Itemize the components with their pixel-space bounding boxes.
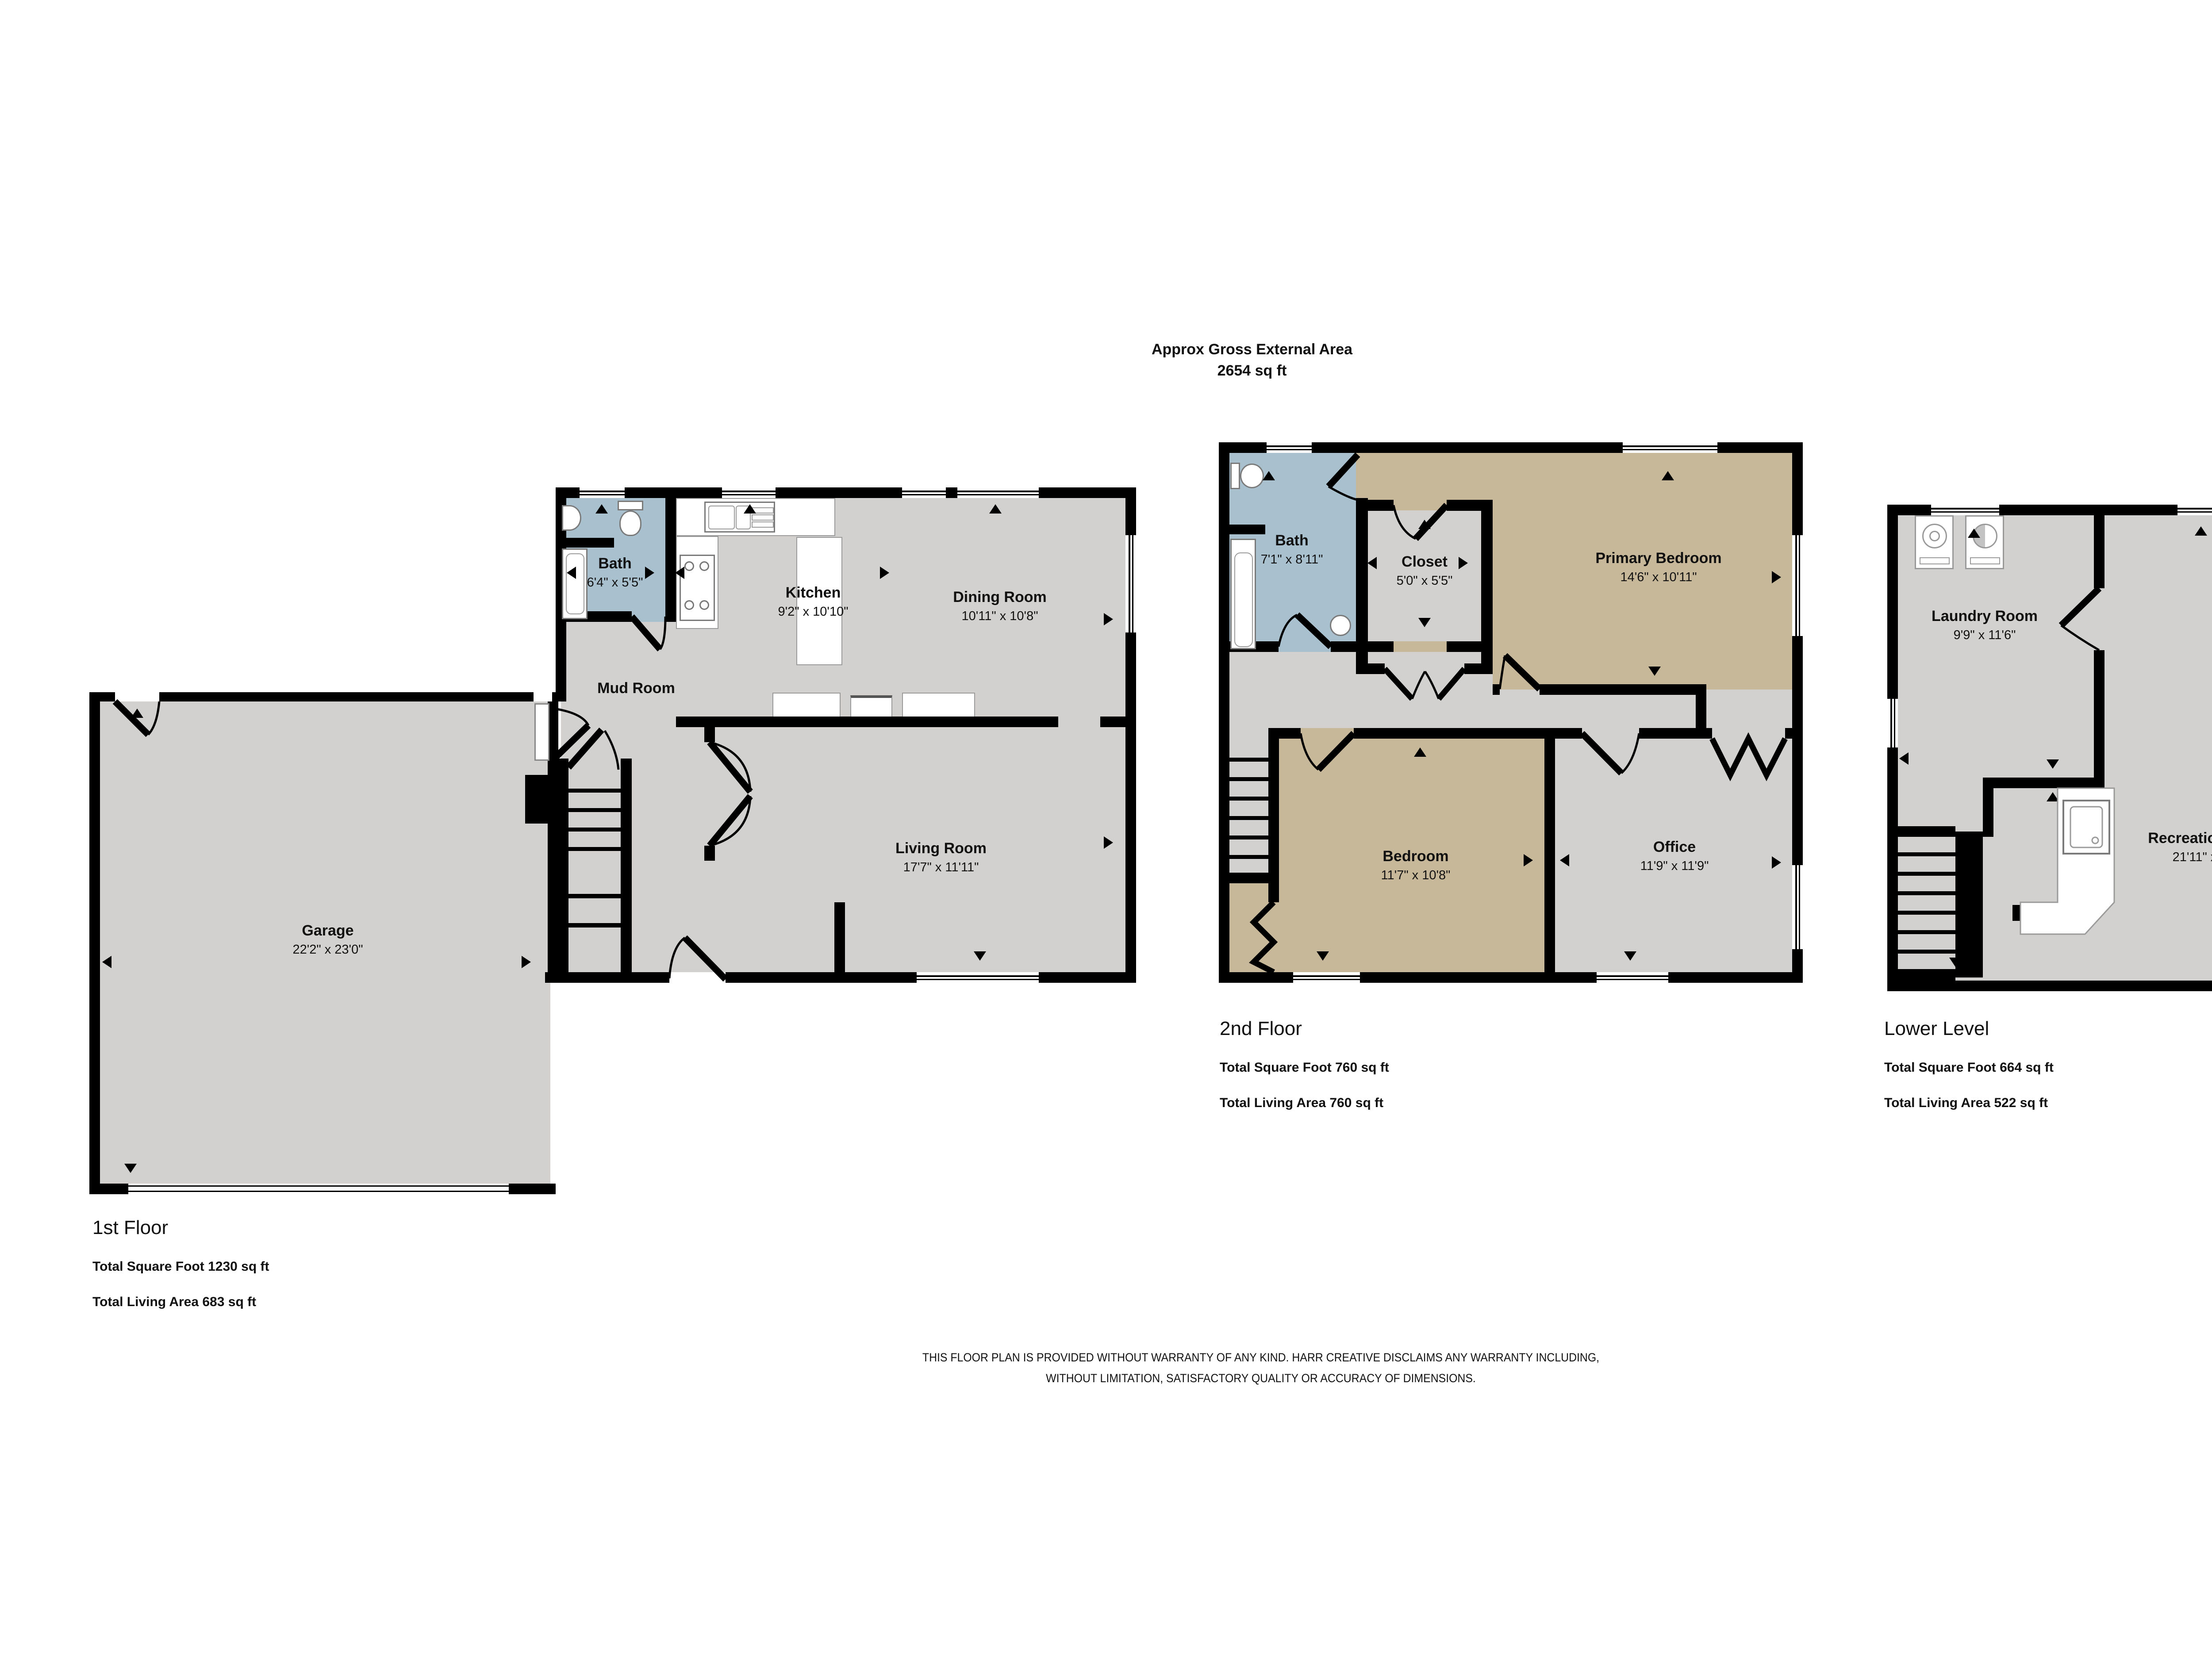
wall — [1100, 717, 1136, 727]
room-dims: 16'8" x 11'2" — [2182, 626, 2212, 644]
wall — [1268, 883, 1279, 902]
room-name: Bedroom — [1323, 847, 1509, 866]
gross-area-header: Approx Gross External Area 2654 sq ft — [942, 339, 1562, 381]
direction-arrow-icon — [1414, 747, 1426, 757]
window — [1792, 865, 1803, 949]
washer-icon — [1915, 515, 1954, 569]
direction-arrow-icon — [974, 951, 986, 961]
room-name: Bath — [522, 554, 708, 573]
direction-arrow-icon — [1662, 471, 1674, 480]
room-name: Living Room — [848, 839, 1034, 858]
wall — [1983, 778, 2104, 788]
room-name: Office — [1582, 837, 1767, 857]
direction-arrow-icon — [1263, 471, 1275, 480]
floorplan-page: { "header": { "line1": "Approx Gross Ext… — [0, 0, 2212, 1671]
room-name: Recreation Room — [2117, 828, 2212, 848]
direction-arrow-icon — [1104, 613, 1113, 625]
wall — [1224, 873, 1279, 883]
direction-arrow-icon — [1104, 836, 1113, 849]
wall — [1268, 739, 1279, 883]
window — [1597, 972, 1668, 983]
room-name: Closet — [1332, 552, 1517, 571]
floor-total-living-area: Total Living Area 760 sq ft — [1220, 1095, 1389, 1111]
direction-arrow-icon — [102, 956, 111, 968]
floor-total-square-foot: Total Square Foot 1230 sq ft — [92, 1259, 269, 1275]
direction-arrow-icon — [595, 504, 608, 514]
wall — [1955, 832, 1983, 977]
door-opening — [669, 972, 726, 983]
direction-arrow-icon — [2047, 759, 2059, 769]
wall — [1356, 500, 1394, 511]
floor-total-square-foot: Total Square Foot 664 sq ft — [1884, 1060, 2054, 1076]
room-dims: 5'0" x 5'5" — [1332, 571, 1517, 590]
sink-icon — [1330, 615, 1351, 636]
wall — [1268, 728, 1301, 739]
room-name: Laundry Room — [1892, 606, 2078, 626]
window — [1623, 442, 1717, 453]
wall — [1898, 972, 1955, 981]
window — [1293, 972, 1360, 983]
direction-arrow-icon — [522, 956, 531, 968]
dryer-icon — [1965, 515, 2004, 569]
window — [917, 972, 1039, 983]
window — [957, 487, 1039, 498]
window — [2177, 505, 2212, 515]
direction-arrow-icon — [1899, 752, 1909, 765]
kitchen-sink-icon — [704, 502, 775, 533]
wall — [1493, 684, 1500, 695]
direction-arrow-icon — [2195, 526, 2207, 536]
direction-arrow-icon — [1524, 854, 1533, 866]
wall — [1983, 788, 1993, 837]
stairs-lower-level — [1898, 837, 1955, 974]
disclaimer-line2: WITHOUT LIMITATION, SATISFACTORY QUALITY… — [793, 1368, 1729, 1389]
room-label-dining-room: Dining Room 10'11" x 10'8" — [907, 587, 1093, 625]
wall — [1219, 442, 1229, 983]
burner — [684, 600, 694, 610]
wall — [704, 846, 715, 861]
washer-agitator — [1929, 531, 1940, 541]
wall — [1331, 641, 1356, 652]
direction-arrow-icon — [744, 504, 756, 514]
wall — [1464, 663, 1493, 674]
wall — [2094, 515, 2104, 588]
wall — [1356, 663, 1385, 674]
window — [1792, 535, 1803, 636]
window — [1887, 699, 1898, 747]
room-dims: 11'9" x 11'9" — [1582, 857, 1767, 875]
stairs-first-floor-upper — [568, 773, 621, 851]
room-dims: 9'2" x 10'10" — [720, 602, 906, 621]
room-dims: 17'7" x 11'11" — [848, 858, 1034, 877]
direction-arrow-icon — [1648, 667, 1661, 676]
room-label-closet: Closet 5'0" x 5'5" — [1332, 552, 1517, 590]
room-dims: 9'9" x 11'6" — [1892, 626, 2078, 644]
wall — [2094, 650, 2104, 788]
sink-bowl — [708, 506, 735, 529]
caption-1st-floor: 1st Floor Total Square Foot 1230 sq ft T… — [92, 1216, 269, 1330]
washer-base — [1920, 557, 1950, 564]
floor-total-living-area: Total Living Area 522 sq ft — [1884, 1095, 2054, 1111]
direction-arrow-icon — [1772, 856, 1781, 869]
floor-total-square-foot: Total Square Foot 760 sq ft — [1220, 1060, 1389, 1076]
wall — [1887, 981, 2212, 991]
direction-arrow-icon — [1418, 618, 1431, 627]
room-name: Dining Room — [907, 587, 1093, 607]
direction-arrow-icon — [2047, 792, 2059, 801]
wall — [1447, 641, 1493, 652]
room-dims: 11'7" x 10'8" — [1323, 866, 1509, 885]
room-label-recreation-room-lower: Recreation Room 21'11" x 11'2" — [2117, 828, 2212, 866]
wall — [1550, 728, 1582, 739]
direction-arrow-icon — [131, 709, 143, 718]
wall — [1639, 728, 1712, 739]
wall — [704, 727, 715, 742]
room-name: Recreation Room — [2182, 606, 2212, 626]
wall — [676, 717, 1058, 727]
room-label-recreation-room-upper: Recreation Room 16'8" x 11'2" — [2182, 606, 2212, 644]
direction-arrow-icon — [1418, 520, 1431, 529]
room-label-garage: Garage 22'2" x 23'0" — [235, 921, 421, 959]
wall — [545, 972, 1136, 983]
room-label-living-room: Living Room 17'7" x 11'11" — [848, 839, 1034, 877]
wall — [89, 692, 100, 1194]
burner — [699, 600, 709, 610]
window — [722, 487, 776, 498]
garage-door — [128, 1184, 509, 1194]
floor-title: 2nd Floor — [1220, 1017, 1389, 1040]
door-opening — [115, 692, 159, 701]
room-dims: 10'11" x 10'8" — [907, 607, 1093, 625]
drainboard — [752, 514, 774, 521]
room-dims: 14'6" x 10'11" — [1566, 568, 1751, 586]
support-post — [2012, 905, 2028, 921]
room-dims: 6'4" x 5'5" — [522, 573, 708, 592]
window — [1125, 535, 1136, 632]
gross-area-line1: Approx Gross External Area — [942, 339, 1562, 360]
room-name: Mud Room — [543, 678, 729, 698]
bedroom-corner — [1224, 883, 1274, 972]
room-label-bath1: Bath 6'4" x 5'5" — [522, 554, 708, 592]
caption-2nd-floor: 2nd Floor Total Square Foot 760 sq ft To… — [1220, 1017, 1389, 1131]
direction-arrow-icon — [1560, 854, 1569, 866]
drainboard — [752, 521, 774, 528]
direction-arrow-icon — [124, 1164, 137, 1173]
floor-title: Lower Level — [1884, 1017, 2054, 1040]
room-label-primary-bedroom: Primary Bedroom 14'6" x 10'11" — [1566, 548, 1751, 586]
direction-arrow-icon — [989, 504, 1002, 514]
wall — [525, 775, 548, 824]
window — [580, 487, 625, 498]
wall — [1540, 684, 1696, 695]
disclaimer-line1: THIS FLOOR PLAN IS PROVIDED WITHOUT WARR… — [793, 1347, 1729, 1368]
gross-area-line2: 2654 sq ft — [942, 360, 1562, 381]
disclaimer: THIS FLOOR PLAN IS PROVIDED WITHOUT WARR… — [793, 1347, 1729, 1389]
wall — [621, 759, 632, 972]
direction-arrow-icon — [1772, 571, 1781, 583]
door-panel — [534, 703, 549, 761]
wall — [1898, 826, 1955, 837]
direction-arrow-icon — [1949, 958, 1962, 967]
room-label-office: Office 11'9" x 11'9" — [1582, 837, 1767, 875]
floor-title: 1st Floor — [92, 1216, 269, 1239]
wall — [1544, 739, 1555, 972]
wall — [558, 759, 568, 972]
toilet-tank — [618, 501, 643, 510]
direction-arrow-icon — [1317, 951, 1329, 961]
room-dims: 21'11" x 11'2" — [2117, 848, 2212, 866]
direction-arrow-icon — [1624, 951, 1636, 961]
wall — [1785, 728, 1797, 739]
caption-lower-level: Lower Level Total Square Foot 664 sq ft … — [1884, 1017, 2054, 1131]
toilet-icon — [619, 510, 641, 536]
wall — [1354, 728, 1550, 739]
window — [1267, 442, 1312, 453]
direction-arrow-icon — [1968, 529, 1980, 538]
room-label-kitchen: Kitchen 9'2" x 10'10" — [720, 583, 906, 621]
toilet-icon — [1240, 464, 1264, 488]
wall — [834, 902, 845, 972]
room-name: Garage — [235, 921, 421, 940]
stairs-second-floor — [1224, 742, 1268, 873]
direction-arrow-icon — [880, 567, 889, 579]
toilet-tank — [1230, 463, 1240, 489]
room-label-mud-room: Mud Room — [543, 678, 729, 698]
room-label-laundry-room: Laundry Room 9'9" x 11'6" — [1892, 606, 2078, 644]
floor-total-living-area: Total Living Area 683 sq ft — [92, 1294, 269, 1310]
wall — [1356, 641, 1394, 652]
wall — [1887, 505, 1898, 991]
room-name: Kitchen — [720, 583, 906, 602]
stairs-first-floor-lower — [568, 869, 621, 944]
room-name: Primary Bedroom — [1566, 548, 1751, 568]
window — [1931, 505, 1999, 515]
room-name: Bath — [1199, 531, 1385, 550]
room-label-bedroom: Bedroom 11'7" x 10'8" — [1323, 847, 1509, 885]
wall — [561, 538, 614, 548]
room-dims: 22'2" x 23'0" — [235, 940, 421, 959]
wall — [556, 487, 1136, 498]
dryer-base — [1970, 557, 2000, 564]
window — [902, 487, 946, 498]
